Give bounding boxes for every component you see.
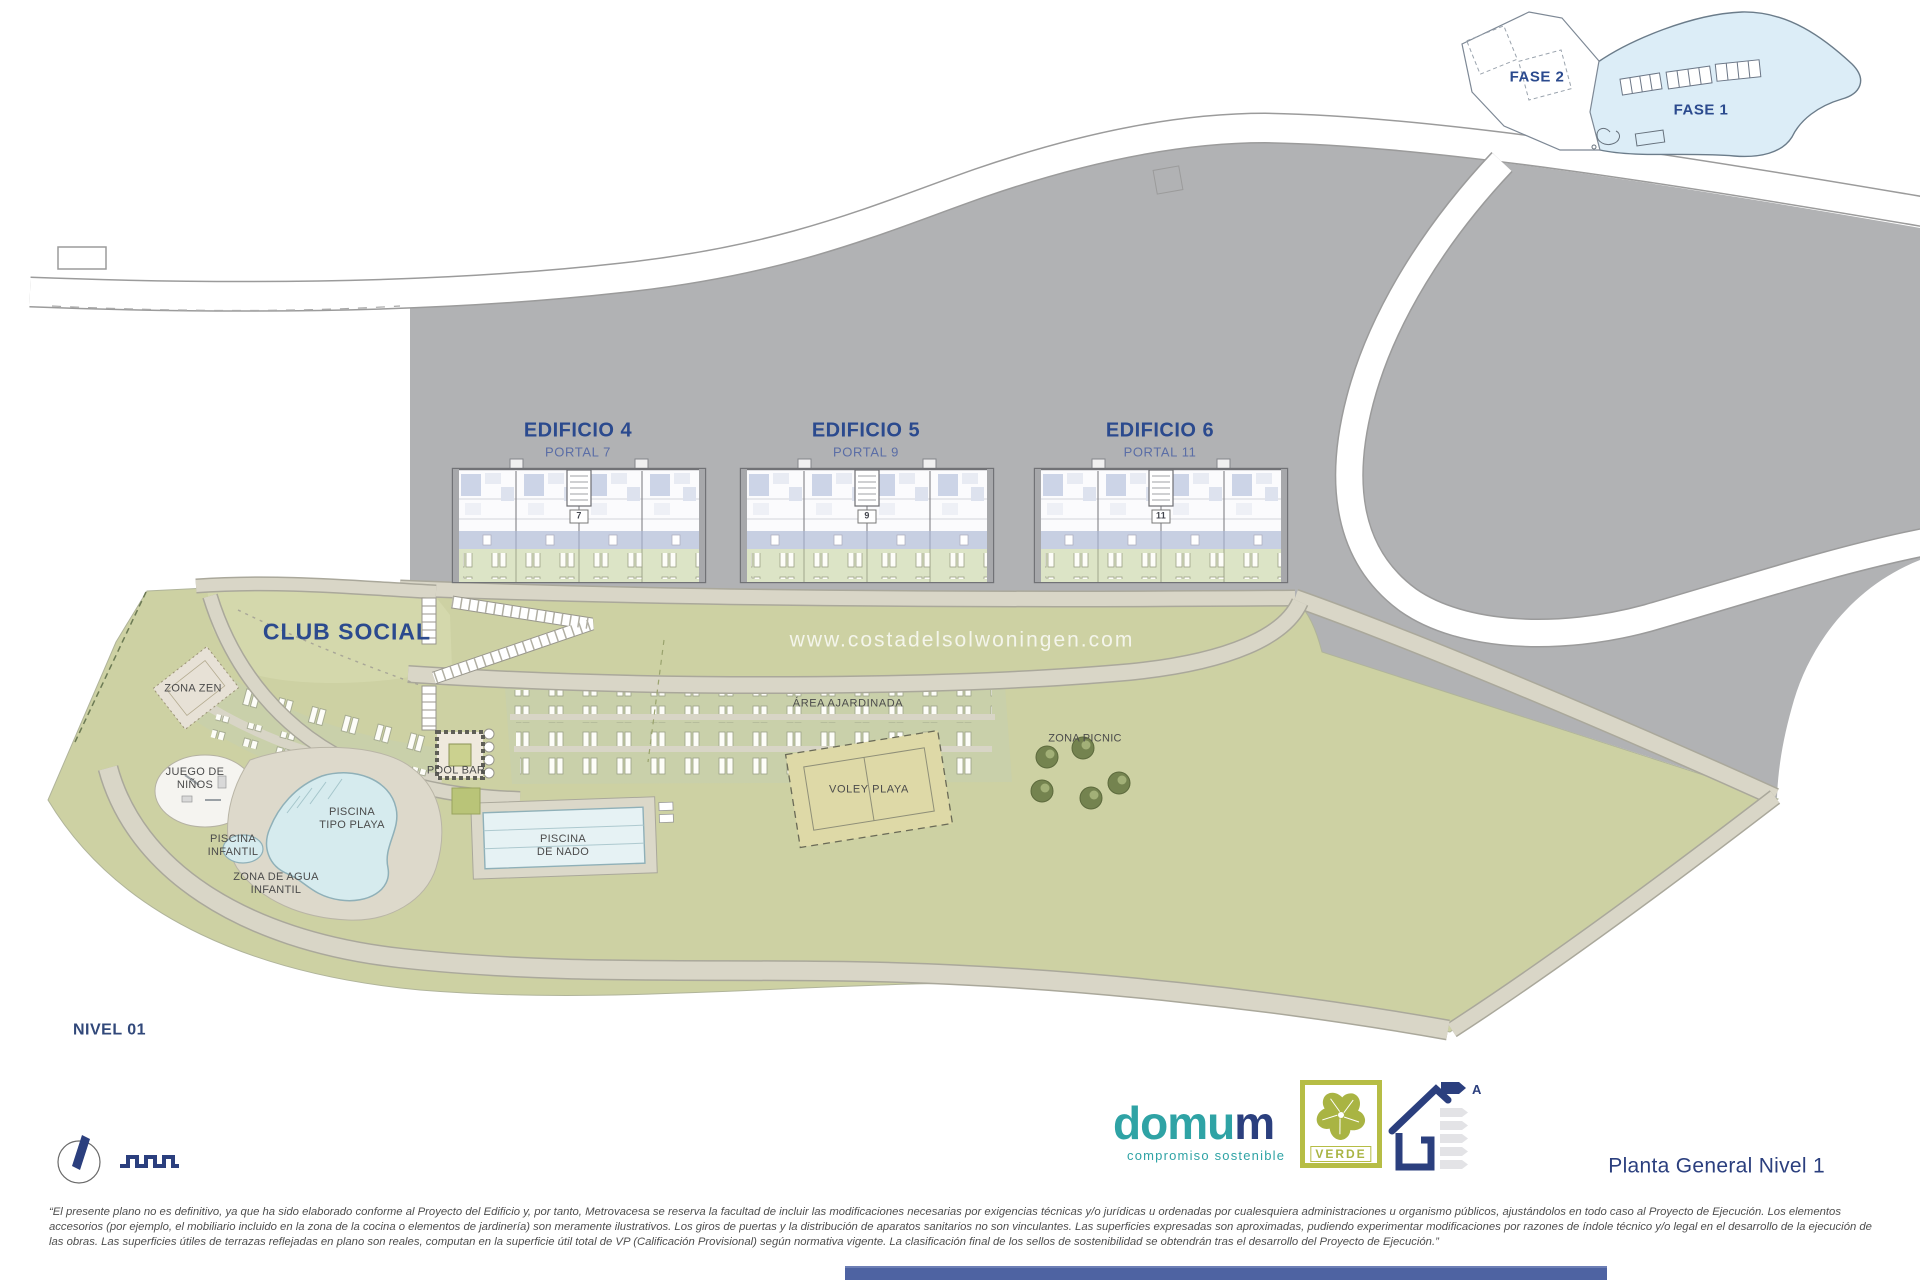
label-area-ajardinada: ÁREA AJARDINADA (793, 698, 903, 711)
label-zona-zen: ZONA ZEN (164, 683, 221, 696)
brand-tagline: compromiso sostenible (1127, 1148, 1313, 1163)
label-edificio-5: EDIFICIO 5 (812, 425, 920, 438)
domum-logo: domum compromiso sostenible (1113, 1100, 1313, 1163)
plan-sheet: EDIFICIO 4 PORTAL 7 EDIFICIO 5 PORTAL 9 … (0, 0, 1920, 1280)
label-portal-11: PORTAL 11 (1124, 446, 1197, 459)
label-line: PISCINA (208, 833, 259, 846)
label-line: ZONA DE AGUA (233, 871, 319, 884)
label-piscina-de-nado: PISCINA DE NADO (537, 833, 589, 859)
label-piscina-infantil: PISCINA INFANTIL (208, 833, 259, 859)
brand-m: m (1234, 1097, 1274, 1149)
label-edificio-4: EDIFICIO 4 (524, 425, 632, 438)
keyplan-fase1-region (1576, 12, 1861, 156)
domum-wordmark: domum (1113, 1100, 1313, 1146)
verde-flower-icon (1305, 1085, 1377, 1147)
energy-class-letter: A (1472, 1082, 1481, 1097)
label-piscina-tipo-playa: PISCINA TIPO PLAYA (319, 806, 385, 832)
verde-label: VERDE (1310, 1146, 1371, 1162)
label-line: PISCINA (537, 833, 589, 846)
sheet-title: Planta General Nivel 1 (1608, 1160, 1825, 1173)
watermark: www.costadelsolwoningen.com (790, 634, 1135, 647)
label-voley-playa: VOLEY PLAYA (829, 784, 909, 797)
label-zona-picnic: ZONA PICNIC (1048, 733, 1122, 746)
energy-class-arrow (1441, 1082, 1466, 1094)
label-line: JUEGO DE (166, 766, 225, 779)
label-line: TIPO PLAYA (319, 819, 385, 832)
scale-bar-icon (120, 1157, 179, 1166)
label-zona-agua-infantil: ZONA DE AGUA INFANTIL (233, 871, 319, 897)
disclaimer-text: “El presente plano no es definitivo, ya … (49, 1205, 1889, 1249)
plate-portal-9: 9 (864, 510, 869, 523)
label-club-social: CLUB SOCIAL (263, 626, 431, 639)
disclaimer-line: “El presente plano no es definitivo, ya … (49, 1205, 1889, 1220)
footer-accent-bar (845, 1266, 1607, 1280)
energy-house-icon (1392, 1082, 1468, 1169)
road-notch (1153, 166, 1183, 194)
north-arrow-icon (58, 1135, 100, 1183)
label-edificio-6: EDIFICIO 6 (1106, 425, 1214, 438)
plate-portal-7: 7 (576, 510, 581, 523)
label-line: DE NADO (537, 846, 589, 859)
plate-portal-11: 11 (1156, 510, 1166, 523)
label-line: NIÑOS (166, 779, 225, 792)
disclaimer-line: las obras. Las superficies útiles de ter… (49, 1235, 1889, 1250)
label-line: INFANTIL (208, 846, 259, 859)
road-layby (58, 247, 106, 269)
label-juego-ninos: JUEGO DE NIÑOS (166, 766, 225, 792)
label-fase-2: FASE 2 (1510, 71, 1565, 84)
brand-main: domu (1113, 1097, 1234, 1149)
label-line: PISCINA (319, 806, 385, 819)
label-portal-7: PORTAL 7 (545, 446, 611, 459)
label-pool-bar: POOL BAR (427, 765, 485, 778)
label-line: INFANTIL (233, 884, 319, 897)
label-nivel-01: NIVEL 01 (73, 1024, 146, 1037)
verde-badge: VERDE (1300, 1080, 1382, 1168)
label-portal-9: PORTAL 9 (833, 446, 899, 459)
disclaimer-line: accesorios (por ejemplo, el mobiliario i… (49, 1220, 1889, 1235)
label-fase-1: FASE 1 (1674, 104, 1729, 117)
